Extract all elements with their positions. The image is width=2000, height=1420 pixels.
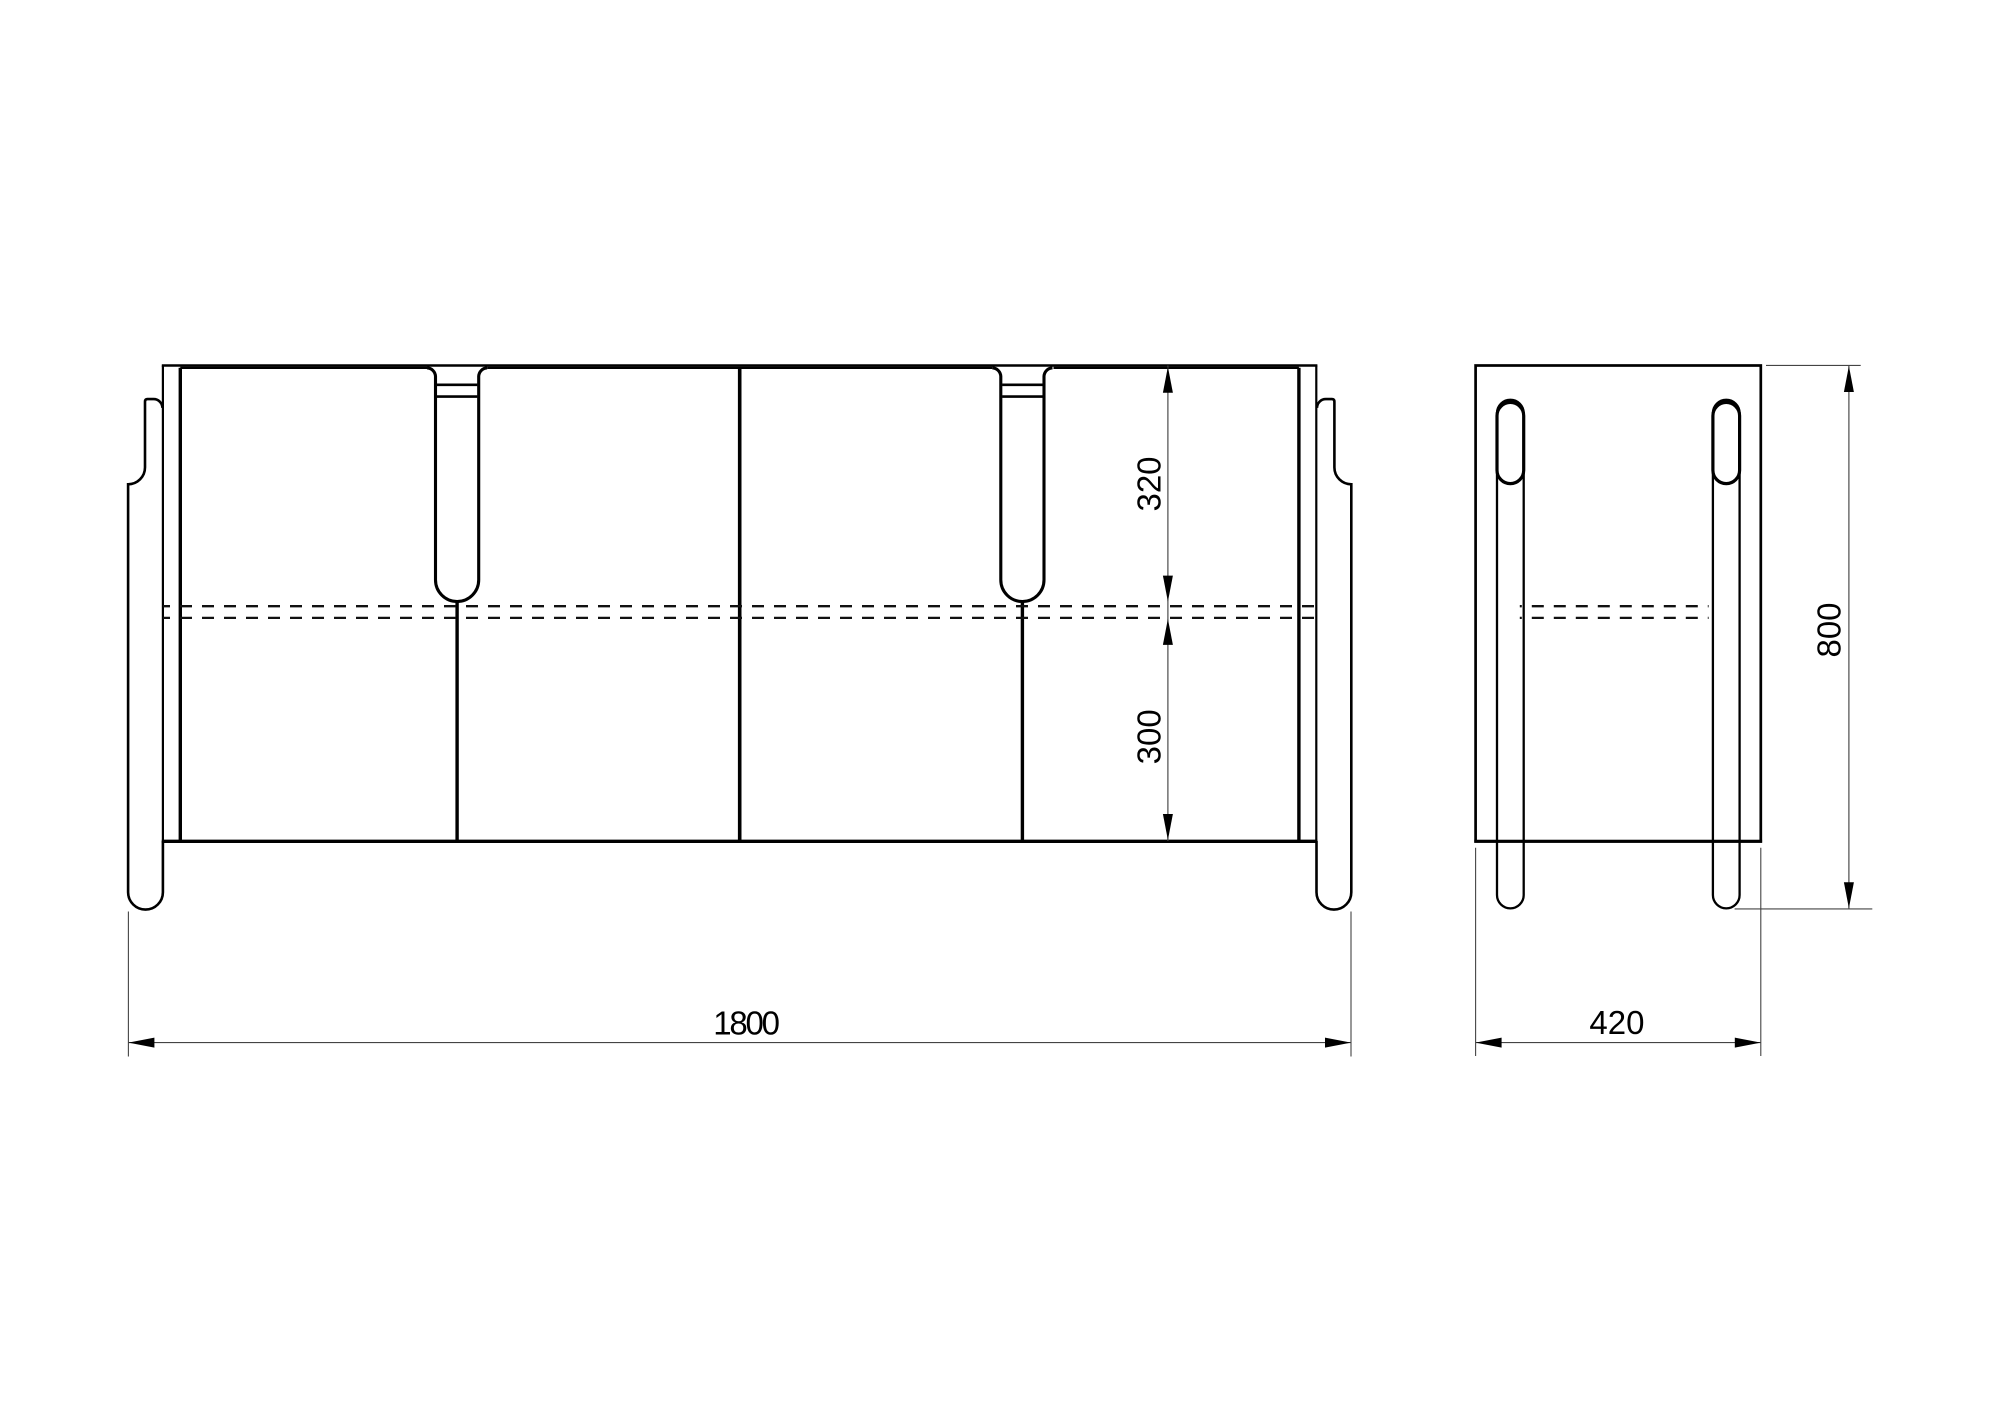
svg-text:800: 800	[1810, 602, 1847, 657]
svg-text:300: 300	[1131, 709, 1168, 764]
svg-text:1800: 1800	[713, 1005, 779, 1042]
svg-text:420: 420	[1589, 1004, 1644, 1041]
svg-text:320: 320	[1131, 456, 1168, 511]
